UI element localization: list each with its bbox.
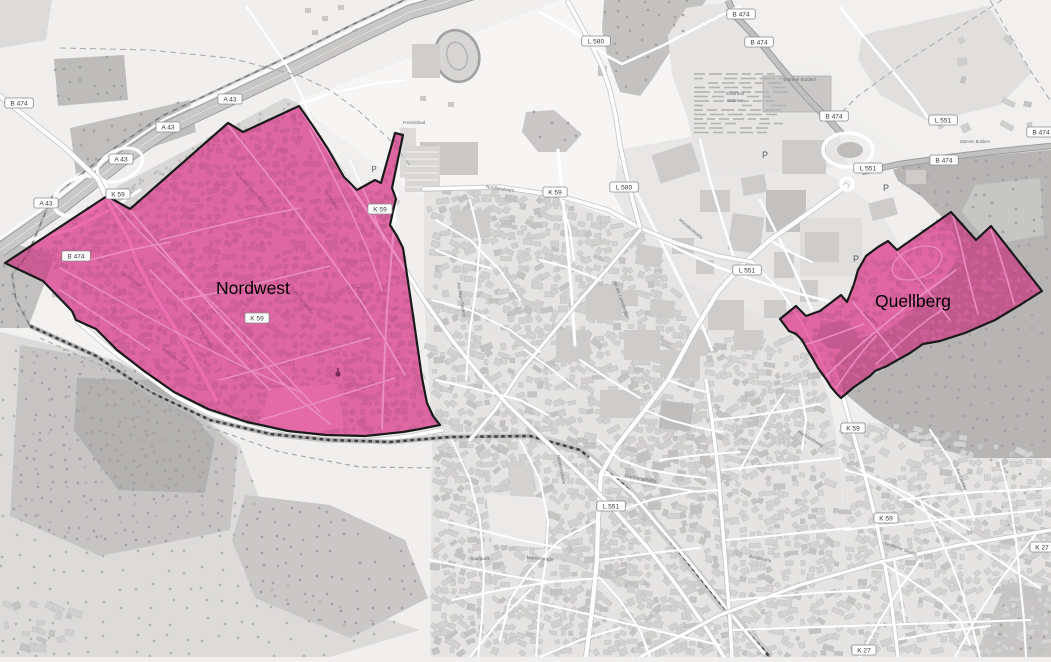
svg-text:P: P: [371, 165, 376, 174]
svg-text:Solarfeld: Solarfeld: [726, 91, 745, 96]
svg-text:A 43: A 43: [39, 201, 53, 208]
svg-text:K 59: K 59: [879, 516, 893, 523]
svg-text:P: P: [762, 150, 768, 160]
svg-text:B 474: B 474: [750, 40, 768, 47]
svg-text:Dülmen: Dülmen: [727, 98, 743, 103]
svg-text:B 474: B 474: [1032, 130, 1050, 137]
svg-text:B 474: B 474: [67, 254, 85, 261]
svg-text:K 59: K 59: [250, 316, 264, 323]
svg-text:B 474: B 474: [825, 114, 843, 121]
svg-text:L 580: L 580: [616, 185, 633, 192]
svg-text:K 59: K 59: [373, 207, 387, 214]
svg-text:K 59: K 59: [111, 192, 125, 199]
svg-text:K 27: K 27: [857, 648, 871, 655]
svg-text:Stadtpark: Stadtpark: [470, 556, 490, 561]
svg-text:P: P: [853, 254, 859, 264]
svg-text:P: P: [883, 183, 889, 193]
svg-text:A 43: A 43: [161, 125, 175, 132]
svg-text:L 551: L 551: [739, 268, 756, 275]
svg-text:L 551: L 551: [860, 166, 877, 173]
svg-text:Quellberg: Quellberg: [875, 291, 951, 311]
svg-text:K 59: K 59: [846, 426, 860, 433]
svg-text:Nordwest: Nordwest: [216, 278, 290, 298]
svg-text:B 474: B 474: [10, 101, 28, 108]
svg-text:B 474: B 474: [935, 158, 953, 165]
svg-text:L 551: L 551: [935, 118, 952, 125]
svg-text:Dülmen Buldern: Dülmen Buldern: [784, 77, 817, 82]
svg-text:Freizeitbad: Freizeitbad: [403, 120, 426, 125]
svg-text:L 580: L 580: [588, 39, 605, 46]
svg-text:K 27: K 27: [1035, 545, 1049, 552]
svg-text:Dülmen Buldern: Dülmen Buldern: [960, 139, 991, 144]
svg-text:A 43: A 43: [114, 157, 128, 164]
svg-text:K 59: K 59: [548, 190, 562, 197]
svg-text:A 43: A 43: [223, 97, 237, 104]
svg-text:L 551: L 551: [603, 504, 620, 511]
svg-text:B 474: B 474: [732, 12, 750, 19]
